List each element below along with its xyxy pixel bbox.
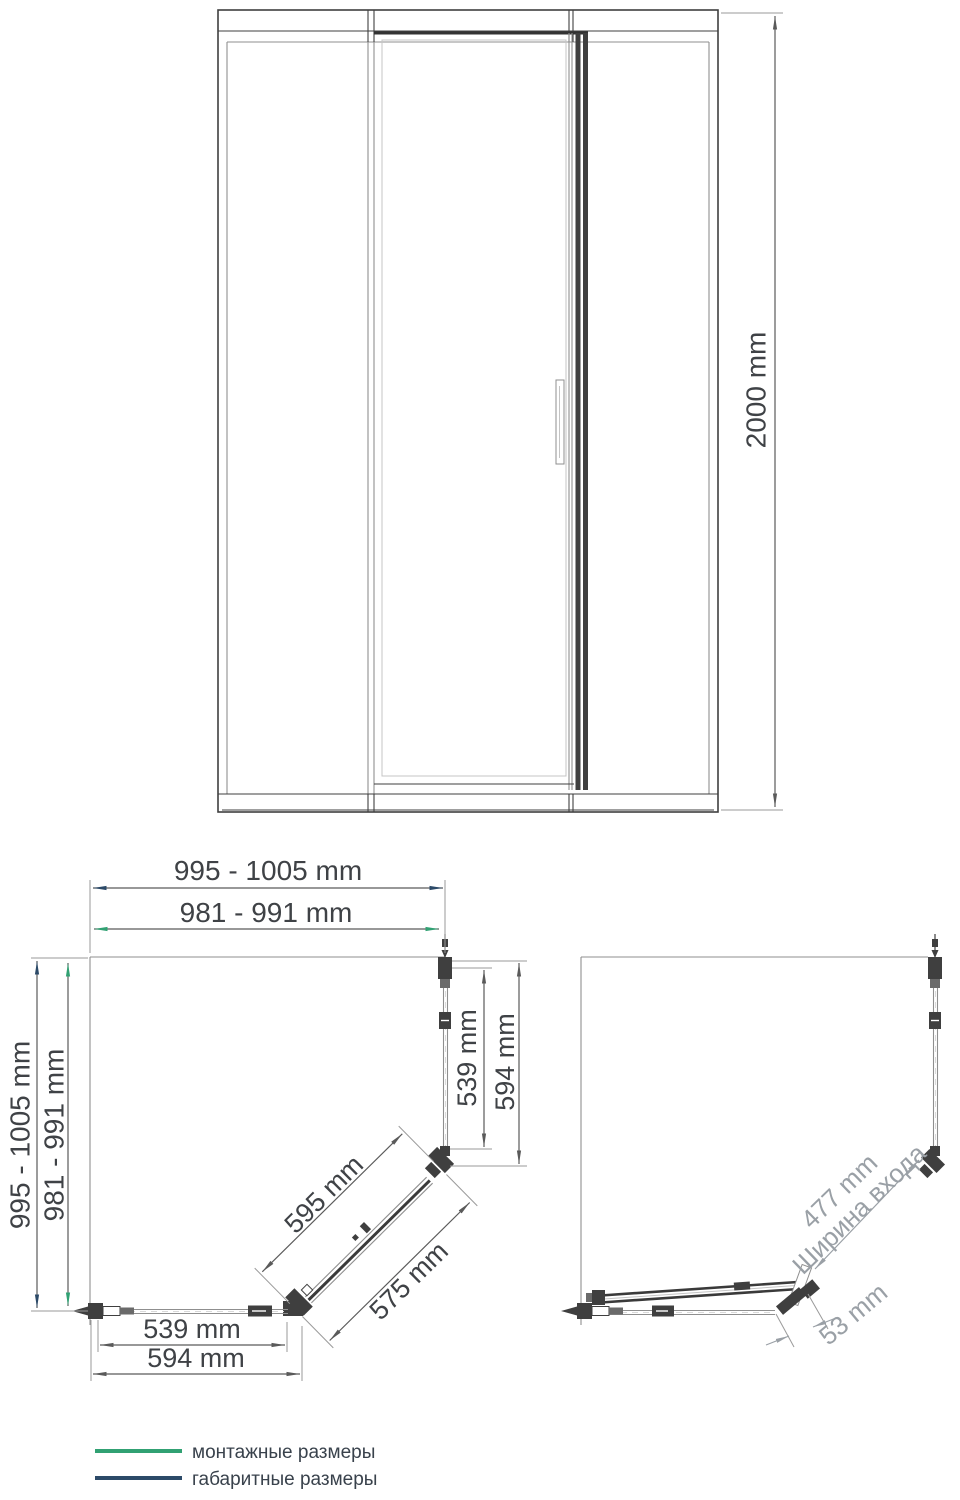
door-corner-bottom	[283, 1284, 313, 1316]
left-mullion	[368, 42, 374, 794]
wall-profile-top	[438, 957, 452, 979]
side-overall-label: 594 mm	[490, 1013, 520, 1111]
width-mounting-label: 981 - 991 mm	[180, 897, 353, 928]
bottom-glass-label: 539 mm	[143, 1314, 241, 1344]
side-panel-dimensions: 539 mm 594 mm	[450, 961, 527, 1166]
legend-mounting-label: монтажные размеры	[192, 1442, 375, 1463]
front-elevation: 2000 mm	[218, 10, 783, 812]
bottom-overall-label: 594 mm	[147, 1343, 245, 1373]
pivot-offset-label: 53 mm	[813, 1277, 893, 1351]
legend-item-mounting: монтажные размеры	[95, 1442, 375, 1463]
legend-overall-label: габаритные размеры	[192, 1469, 377, 1490]
entrance-dimension: 477 mm Ширина входа	[786, 1138, 932, 1280]
width-overall-label: 995 - 1005 mm	[174, 855, 362, 886]
legend-item-overall: габаритные размеры	[95, 1469, 377, 1490]
panel-overlap-profile	[583, 33, 588, 790]
width-dimensions: 995 - 1005 mm 981 - 991 mm	[90, 855, 445, 953]
door-knob	[734, 1281, 751, 1290]
bottom-sill	[218, 794, 718, 812]
elevation-outer-frame	[218, 10, 718, 812]
plan-view-open: 477 mm Ширина входа 53 mm	[561, 934, 945, 1351]
plan-view-closed: 995 - 1005 mm 981 - 991 mm 995 - 1005 mm…	[5, 855, 528, 1381]
anchor-arrow	[932, 950, 939, 958]
right-fixed-panel	[928, 934, 942, 1153]
bottom-panel-dimensions: 539 mm 594 mm	[91, 1314, 302, 1381]
wall-profile-top	[928, 957, 942, 979]
door-glass-label: 595 mm	[279, 1149, 369, 1239]
right-fixed-panel	[438, 934, 452, 1153]
door-knob	[360, 1222, 371, 1233]
door-overall-label: 575 mm	[364, 1236, 454, 1326]
height-dimension-label: 2000 mm	[741, 332, 772, 449]
door-hinge-top	[425, 1146, 454, 1178]
height-dimension: 2000 mm	[721, 13, 783, 810]
depth-dimensions: 995 - 1005 mm 981 - 991 mm	[5, 958, 89, 1311]
side-glass-label: 539 mm	[452, 1009, 482, 1107]
depth-overall-label: 995 - 1005 mm	[5, 1041, 36, 1229]
wall-profile-left	[577, 1303, 592, 1319]
pivot-offset-dimension: 53 mm	[766, 1277, 893, 1351]
depth-mounting-label: 981 - 991 mm	[39, 1049, 70, 1222]
technical-drawing-page: 2000 mm	[0, 0, 960, 1500]
shower-enclosure-drawing: 2000 mm	[0, 0, 960, 1500]
wall-profile-left	[88, 1303, 103, 1319]
door-end-cap	[592, 1290, 605, 1305]
wall-anchor-arrow	[561, 1307, 577, 1316]
sliding-door-panel	[374, 33, 588, 790]
door-glass	[382, 40, 566, 776]
legend: монтажные размеры габаритные размеры	[95, 1442, 377, 1490]
door-edge-profile	[576, 33, 581, 790]
